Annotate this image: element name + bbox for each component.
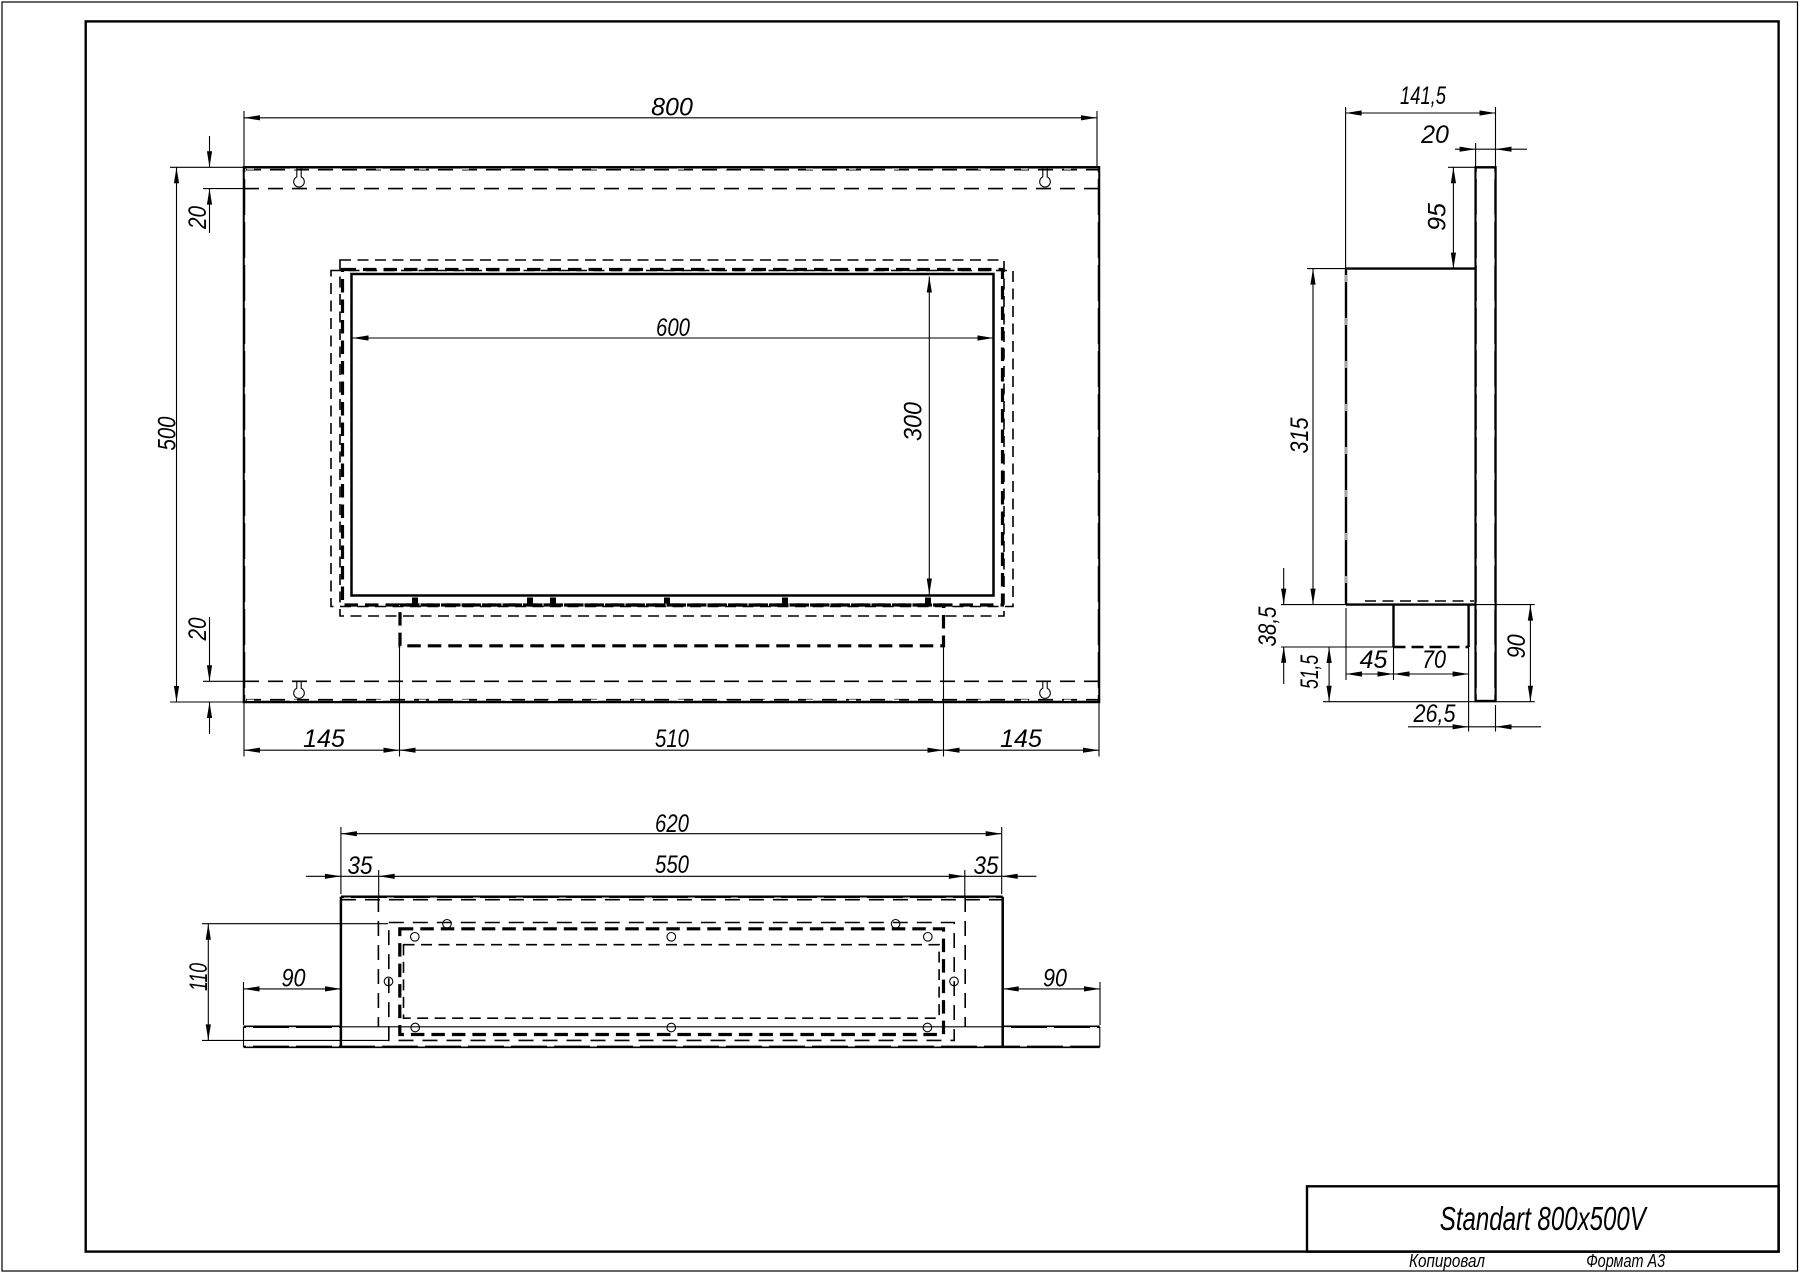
svg-text:800: 800 [651, 94, 693, 122]
svg-text:510: 510 [655, 725, 689, 753]
svg-text:550: 550 [655, 851, 689, 879]
svg-text:35: 35 [348, 852, 373, 880]
svg-text:20: 20 [184, 206, 212, 230]
svg-text:95: 95 [1424, 203, 1452, 231]
svg-text:90: 90 [1043, 965, 1067, 993]
svg-text:35: 35 [974, 852, 999, 880]
svg-text:145: 145 [303, 725, 345, 753]
svg-text:145: 145 [1000, 725, 1042, 753]
svg-text:315: 315 [1286, 417, 1314, 453]
svg-text:500: 500 [154, 416, 182, 450]
svg-text:45: 45 [1360, 646, 1388, 674]
svg-text:20: 20 [1420, 121, 1449, 149]
svg-text:Standart 800x500V: Standart 800x500V [1440, 1200, 1648, 1237]
svg-text:51,5: 51,5 [1296, 655, 1324, 689]
svg-text:110: 110 [185, 963, 213, 991]
svg-text:Формат А3: Формат А3 [1586, 1251, 1665, 1271]
svg-text:26,5: 26,5 [1413, 700, 1456, 728]
svg-text:90: 90 [282, 965, 306, 993]
svg-text:620: 620 [655, 810, 689, 838]
svg-text:90: 90 [1503, 634, 1531, 658]
svg-text:Копировал: Копировал [1409, 1251, 1485, 1271]
svg-text:70: 70 [1422, 646, 1446, 674]
svg-text:20: 20 [184, 617, 212, 641]
svg-text:38,5: 38,5 [1254, 606, 1282, 646]
svg-text:141,5: 141,5 [1400, 82, 1446, 110]
svg-text:300: 300 [900, 402, 928, 441]
svg-text:600: 600 [656, 314, 690, 342]
